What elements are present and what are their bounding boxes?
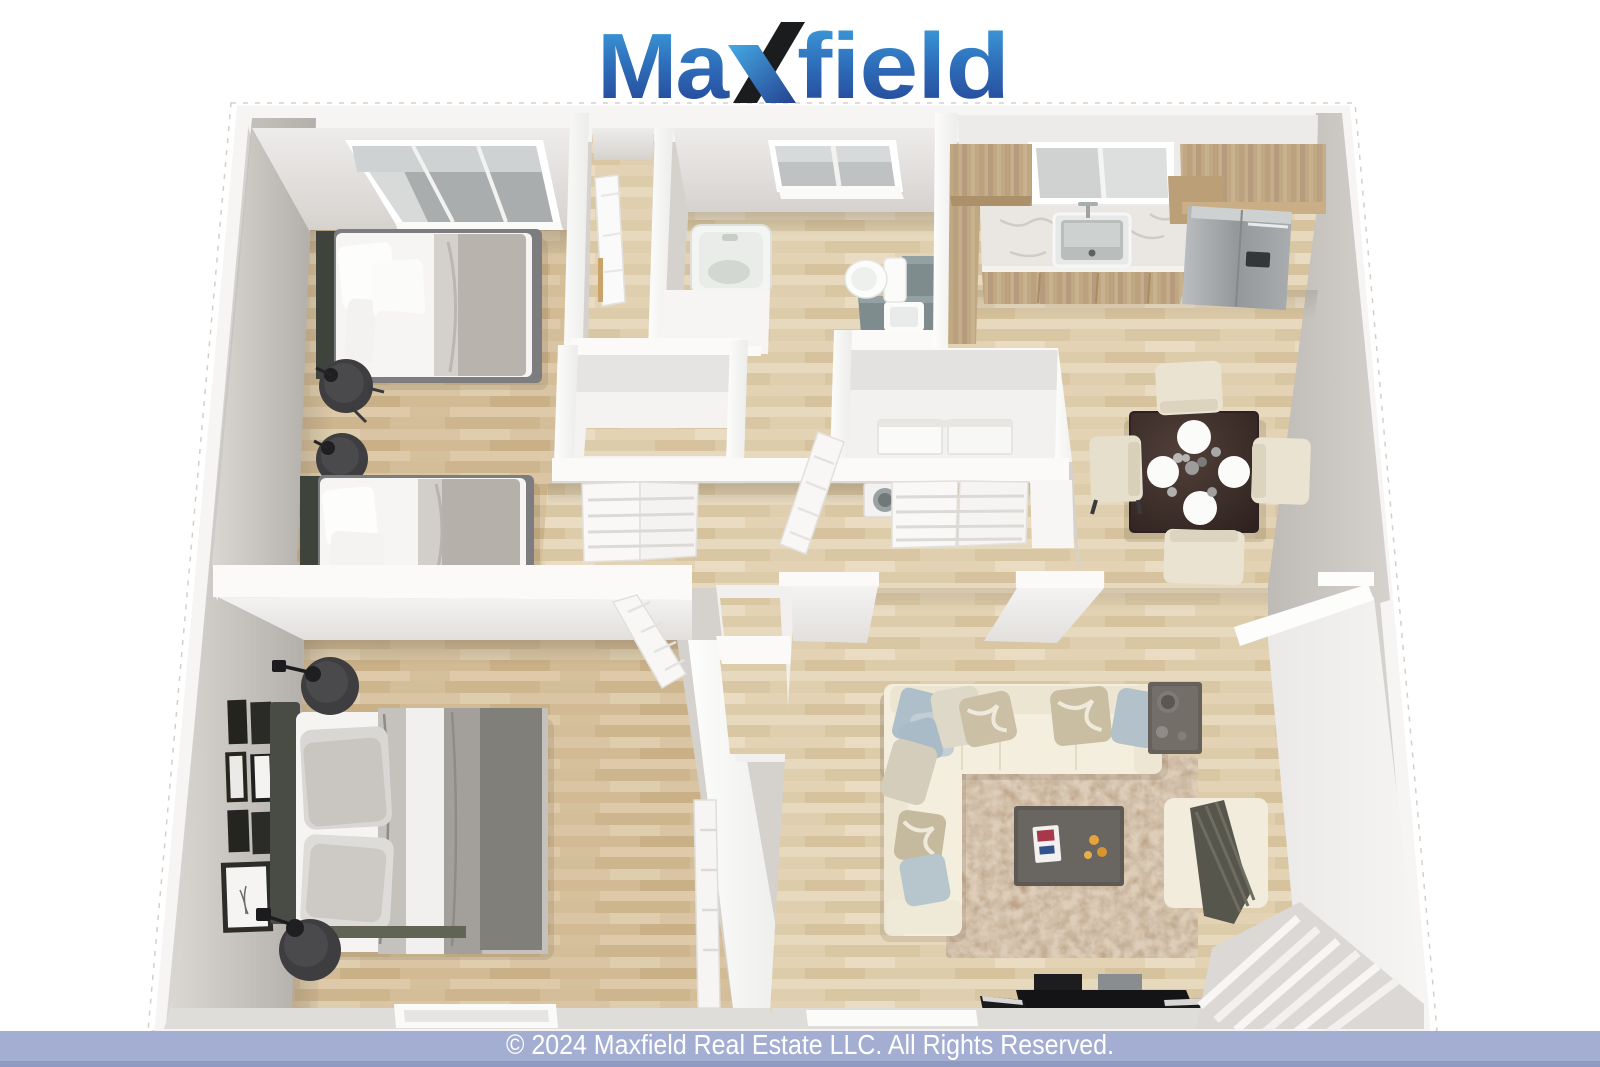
svg-text:© 2024 Maxfield Real Estate LL: © 2024 Maxfield Real Estate LLC. All Rig… <box>506 1029 1114 1060</box>
svg-text:Ma: Ma <box>597 14 730 118</box>
svg-text:field: field <box>797 14 1009 118</box>
